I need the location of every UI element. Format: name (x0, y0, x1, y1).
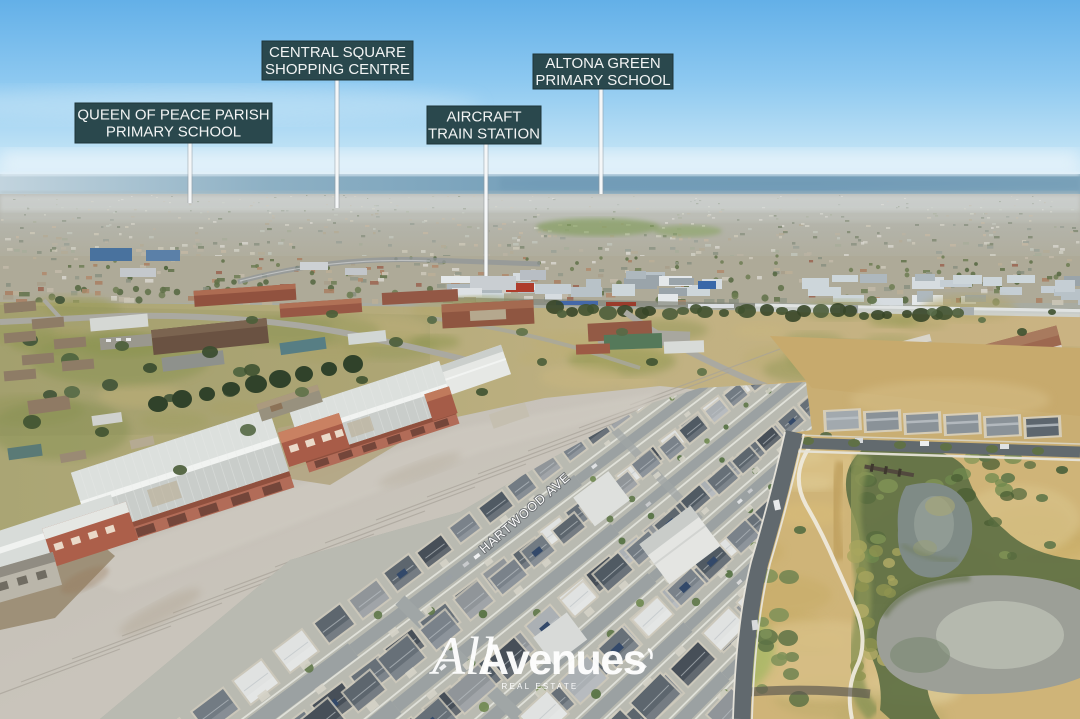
svg-text:REAL ESTATE: REAL ESTATE (502, 682, 579, 691)
svg-text:ALTONA GREEN: ALTONA GREEN (545, 55, 660, 72)
svg-text:QUEEN OF PEACE PARISH: QUEEN OF PEACE PARISH (77, 107, 269, 124)
svg-text:SHOPPING CENTRE: SHOPPING CENTRE (265, 61, 410, 78)
svg-text:Avenues: Avenues (478, 636, 646, 684)
svg-text:AIRCRAFT: AIRCRAFT (447, 109, 522, 126)
svg-text:PRIMARY SCHOOL: PRIMARY SCHOOL (535, 72, 670, 89)
svg-text:TRAIN STATION: TRAIN STATION (428, 126, 540, 143)
svg-text:CENTRAL SQUARE: CENTRAL SQUARE (269, 44, 406, 61)
svg-text:PRIMARY SCHOOL: PRIMARY SCHOOL (106, 124, 241, 141)
